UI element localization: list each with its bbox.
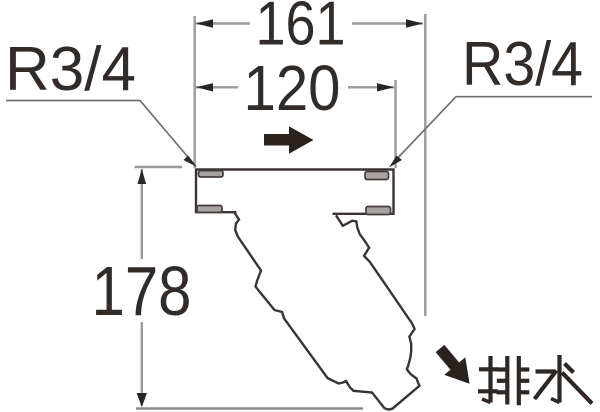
svg-text:161: 161 [256,0,346,59]
svg-text:120: 120 [244,52,341,124]
svg-text:R3/4: R3/4 [462,30,583,99]
svg-text:R3/4: R3/4 [5,35,136,104]
svg-text:178: 178 [92,252,192,330]
